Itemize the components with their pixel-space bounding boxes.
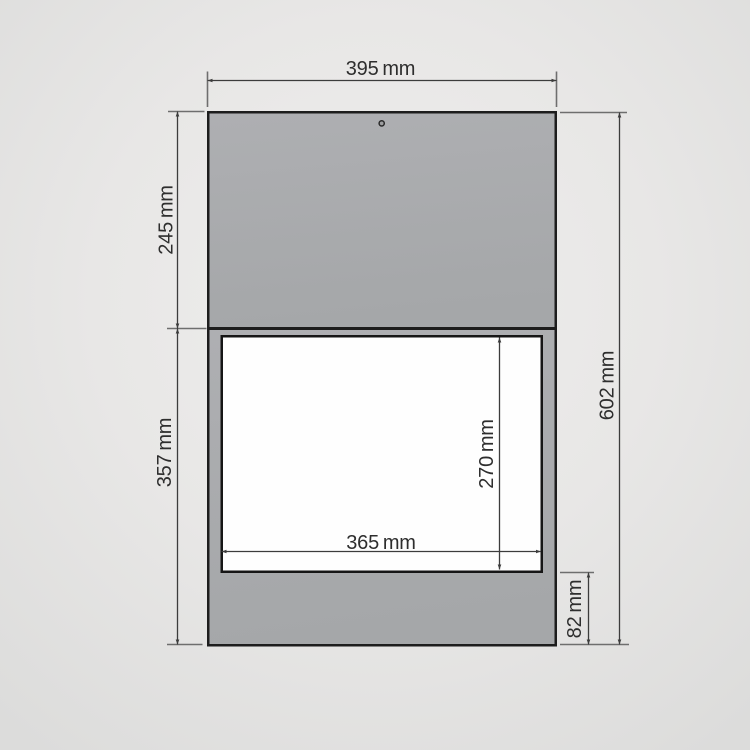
svg-text:270 mm: 270 mm: [476, 419, 498, 489]
svg-text:395 mm: 395 mm: [346, 58, 416, 80]
svg-text:82 mm: 82 mm: [564, 580, 586, 639]
svg-text:357 mm: 357 mm: [154, 418, 176, 488]
svg-text:602 mm: 602 mm: [597, 351, 619, 421]
svg-text:365 mm: 365 mm: [346, 532, 416, 554]
svg-text:245 mm: 245 mm: [156, 185, 178, 255]
